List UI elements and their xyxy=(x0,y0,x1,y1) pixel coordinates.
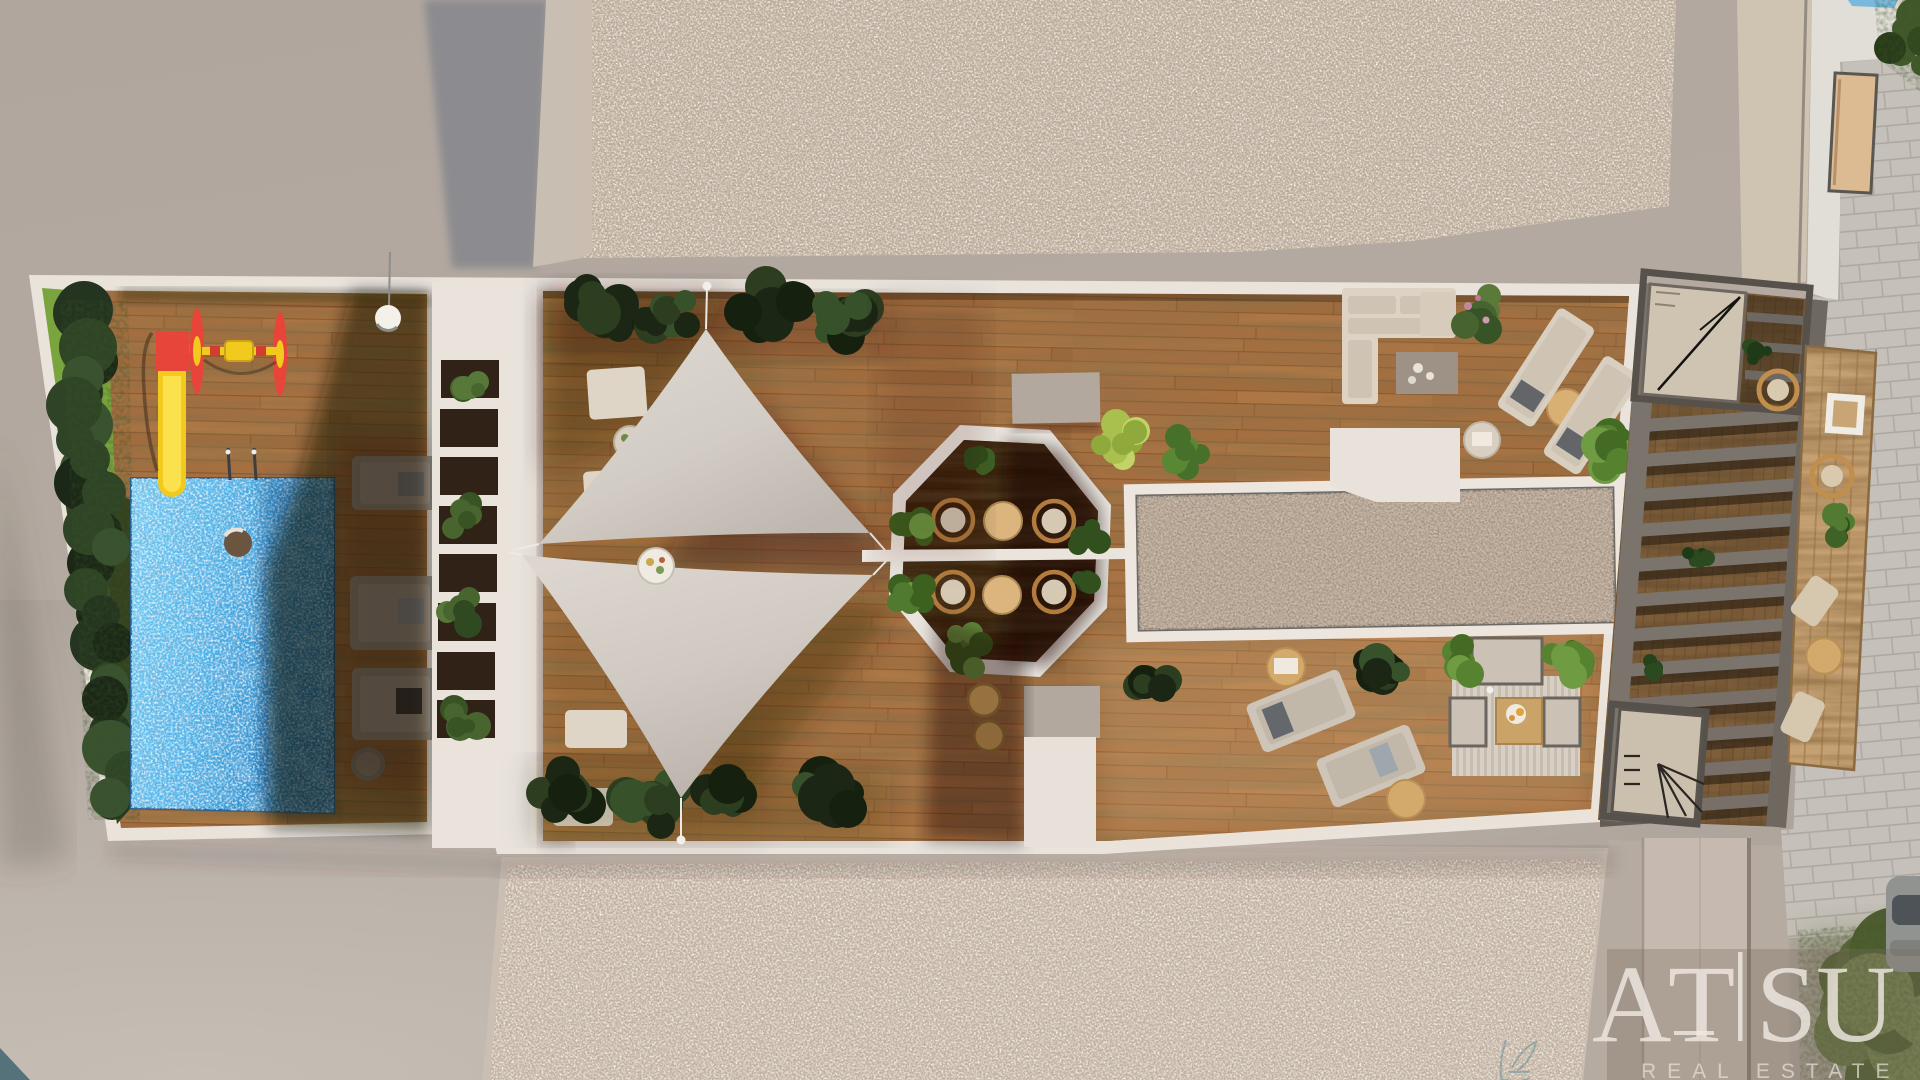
svg-text:U: U xyxy=(1816,943,1895,1065)
svg-text:A: A xyxy=(1592,943,1671,1065)
svg-text:REAL ESTATE: REAL ESTATE xyxy=(1641,1060,1900,1080)
svg-text:T: T xyxy=(1668,943,1735,1065)
svg-text:S: S xyxy=(1756,943,1817,1065)
